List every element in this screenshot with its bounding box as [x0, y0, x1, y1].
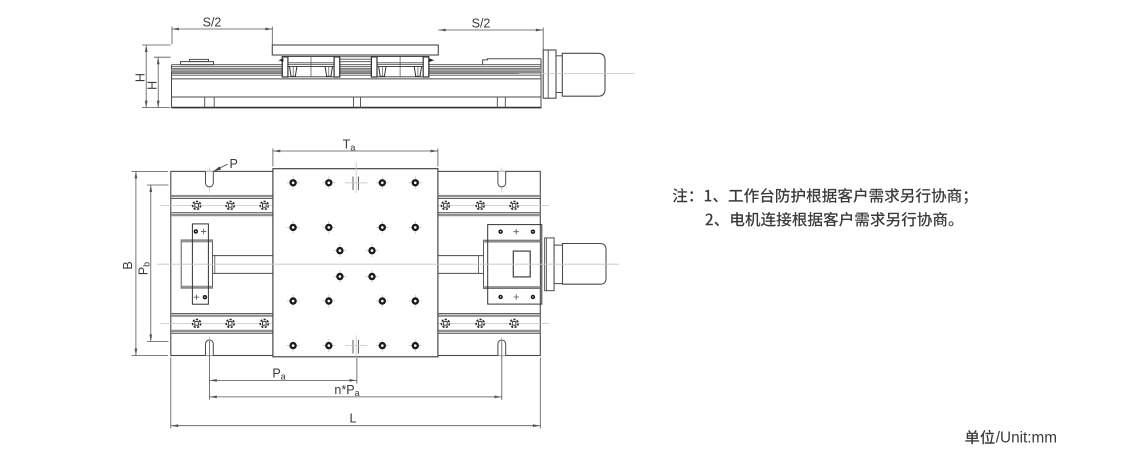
svg-text:S/2: S/2 [203, 16, 222, 30]
svg-text:B: B [121, 261, 135, 269]
svg-text:S/2: S/2 [472, 17, 491, 31]
svg-text:P: P [230, 157, 238, 171]
svg-text:H: H [145, 81, 159, 90]
svg-text:L: L [350, 412, 357, 426]
svg-text:/Unit:mm: /Unit:mm [996, 430, 1057, 447]
svg-text:H: H [133, 73, 147, 82]
